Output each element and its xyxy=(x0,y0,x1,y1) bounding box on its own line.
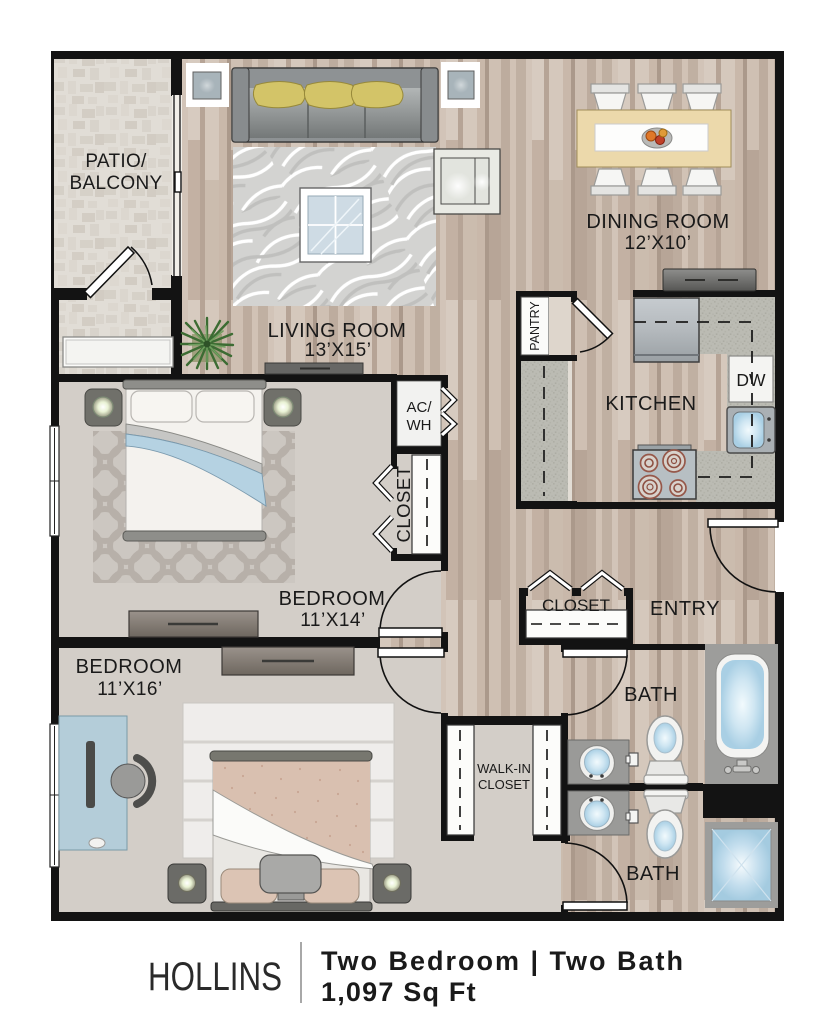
svg-text:CLOSET: CLOSET xyxy=(542,596,610,615)
svg-text:1,097 Sq Ft: 1,097 Sq Ft xyxy=(321,977,477,1007)
svg-text:HOLLINS: HOLLINS xyxy=(148,955,282,999)
svg-text:BEDROOM: BEDROOM xyxy=(76,656,183,678)
svg-text:PANTRY: PANTRY xyxy=(528,301,542,351)
svg-text:13’X15’: 13’X15’ xyxy=(305,340,372,361)
svg-text:11’X16’: 11’X16’ xyxy=(97,679,162,700)
svg-text:11’X14’: 11’X14’ xyxy=(300,610,365,631)
svg-text:ENTRY: ENTRY xyxy=(650,598,720,620)
svg-text:WH: WH xyxy=(407,417,432,434)
svg-text:BEDROOM: BEDROOM xyxy=(279,588,386,610)
svg-text:WALK-IN: WALK-IN xyxy=(477,761,531,776)
svg-text:12’X10’: 12’X10’ xyxy=(625,233,692,254)
svg-text:LIVING ROOM: LIVING ROOM xyxy=(268,320,407,342)
svg-text:Two Bedroom | Two Bath: Two Bedroom | Two Bath xyxy=(321,946,685,976)
svg-text:BATH: BATH xyxy=(626,863,680,885)
svg-text:CLOSET: CLOSET xyxy=(393,465,414,542)
svg-text:BATH: BATH xyxy=(624,684,678,706)
svg-text:KITCHEN: KITCHEN xyxy=(605,393,696,415)
svg-text:AC/: AC/ xyxy=(406,399,432,416)
svg-text:CLOSET: CLOSET xyxy=(478,777,530,792)
svg-text:DINING ROOM: DINING ROOM xyxy=(586,211,729,233)
svg-text:BALCONY: BALCONY xyxy=(70,173,163,194)
svg-text:PATIO/: PATIO/ xyxy=(85,151,147,172)
